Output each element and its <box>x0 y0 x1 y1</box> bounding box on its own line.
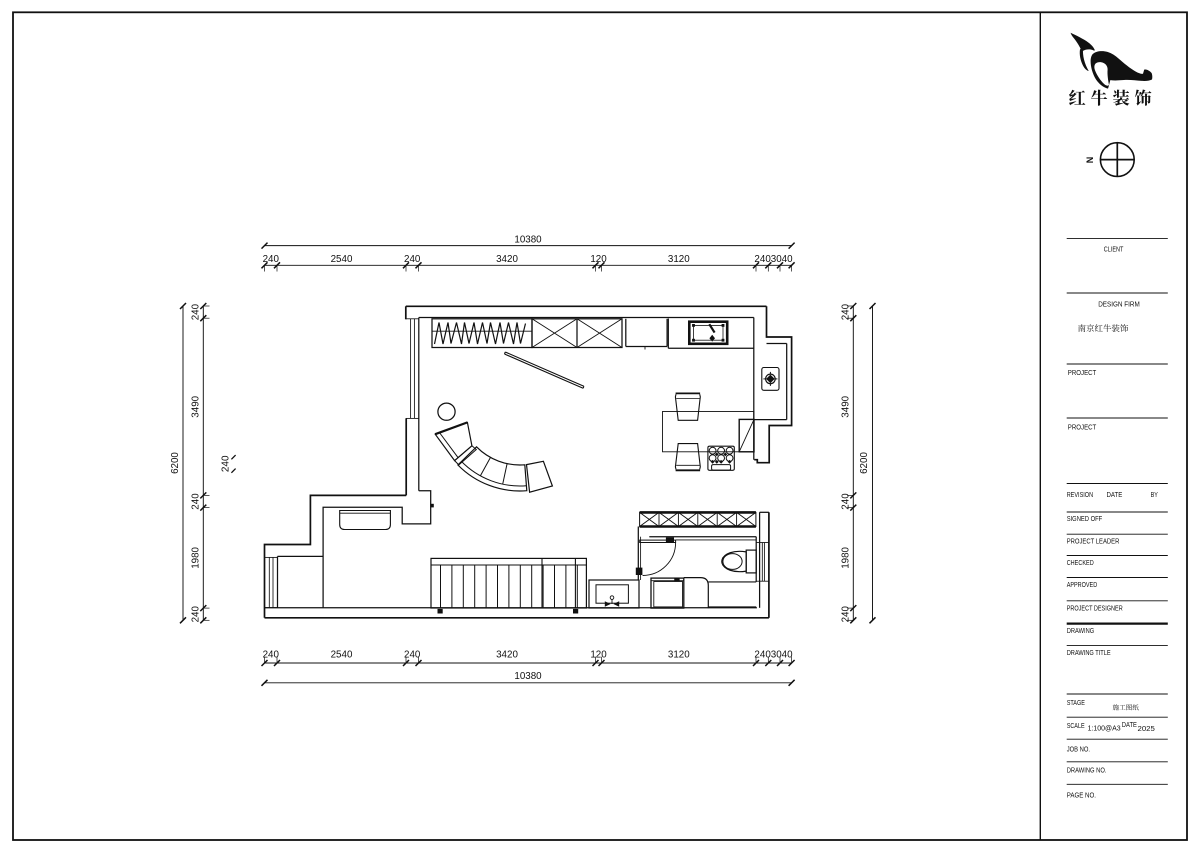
svg-text:2403040: 2403040 <box>754 650 793 661</box>
svg-text:CHECKED: CHECKED <box>1067 558 1094 567</box>
svg-text:DRAWING NO.: DRAWING NO. <box>1067 766 1107 775</box>
svg-text:BY: BY <box>1151 490 1158 499</box>
svg-text:3420: 3420 <box>496 254 518 265</box>
svg-text:1980: 1980 <box>191 546 202 568</box>
svg-text:DRAWING TITLE: DRAWING TITLE <box>1067 648 1111 657</box>
svg-text:120: 120 <box>590 254 607 265</box>
svg-text:3490: 3490 <box>840 395 851 417</box>
svg-text:2540: 2540 <box>331 254 353 265</box>
svg-text:10380: 10380 <box>514 234 542 245</box>
svg-text:10380: 10380 <box>514 671 542 682</box>
svg-text:PROJECT: PROJECT <box>1068 368 1097 377</box>
svg-text:2540: 2540 <box>331 650 353 661</box>
svg-text:STAGE: STAGE <box>1067 698 1085 707</box>
svg-text:240: 240 <box>191 493 202 510</box>
svg-text:240: 240 <box>191 303 202 320</box>
svg-text:6200: 6200 <box>859 452 870 474</box>
svg-text:DATE: DATE <box>1122 720 1137 729</box>
svg-text:2025: 2025 <box>1138 724 1155 733</box>
svg-text:240: 240 <box>263 254 280 265</box>
svg-text:2403040: 2403040 <box>754 254 793 265</box>
svg-text:240: 240 <box>840 493 851 510</box>
svg-text:240: 240 <box>840 605 851 622</box>
svg-text:SCALE: SCALE <box>1067 721 1085 730</box>
svg-text:JOB NO.: JOB NO. <box>1067 744 1090 753</box>
svg-text:DRAWING: DRAWING <box>1067 626 1095 635</box>
svg-text:240: 240 <box>191 605 202 622</box>
svg-text:CLIENT: CLIENT <box>1104 245 1124 254</box>
svg-text:PROJECT: PROJECT <box>1068 422 1097 431</box>
svg-text:DATE: DATE <box>1107 490 1123 499</box>
svg-text:1980: 1980 <box>840 546 851 568</box>
svg-text:APPROVED: APPROVED <box>1067 580 1098 589</box>
svg-text:3490: 3490 <box>191 395 202 417</box>
svg-text:N: N <box>1085 157 1095 164</box>
svg-text:PROJECT DESIGNER: PROJECT DESIGNER <box>1067 603 1123 612</box>
svg-text:6200: 6200 <box>170 452 181 474</box>
svg-text:PROJECT LEADER: PROJECT LEADER <box>1067 536 1120 545</box>
svg-text:3420: 3420 <box>496 650 518 661</box>
svg-text:SIGNED OFF: SIGNED OFF <box>1067 514 1103 523</box>
svg-text:240: 240 <box>840 303 851 320</box>
svg-text:REVISION: REVISION <box>1067 490 1093 499</box>
svg-text:3120: 3120 <box>668 254 690 265</box>
svg-text:120: 120 <box>590 650 607 661</box>
svg-text:240: 240 <box>221 455 232 472</box>
svg-text:DESIGN FIRM: DESIGN FIRM <box>1098 300 1140 309</box>
svg-text:1:100@A3: 1:100@A3 <box>1088 724 1121 733</box>
svg-text:240: 240 <box>404 254 421 265</box>
svg-text:3120: 3120 <box>668 650 690 661</box>
svg-text:PAGE NO.: PAGE NO. <box>1067 790 1096 799</box>
